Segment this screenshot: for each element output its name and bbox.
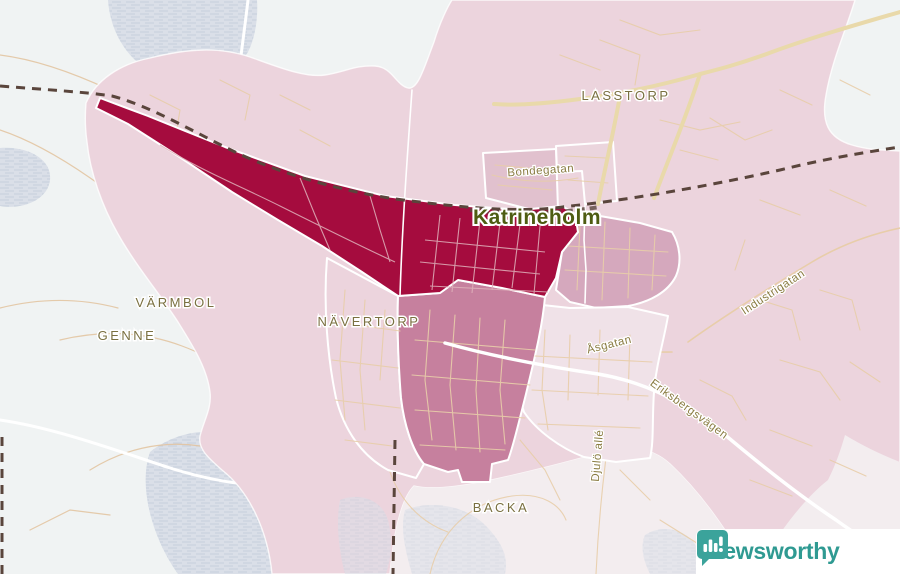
place-label-varmbol: VÄRMBOL [135,295,216,310]
map-screenshot: LASSTORP VÄRMBOL GENNE NÄVERTORP BACKA K… [0,0,900,574]
newsworthy-brand-panel[interactable]: Newsworthy [696,529,900,574]
place-label-navertorp: NÄVERTORP [318,314,421,329]
place-label-genne: GENNE [98,328,157,343]
choropleth-map[interactable]: LASSTORP VÄRMBOL GENNE NÄVERTORP BACKA K… [0,0,900,574]
place-label-backa: BACKA [473,500,530,515]
place-label-lasstorp: LASSTORP [581,88,670,103]
newsworthy-logo-icon [696,529,729,567]
city-label-katrineholm: Katrineholm [473,206,601,229]
